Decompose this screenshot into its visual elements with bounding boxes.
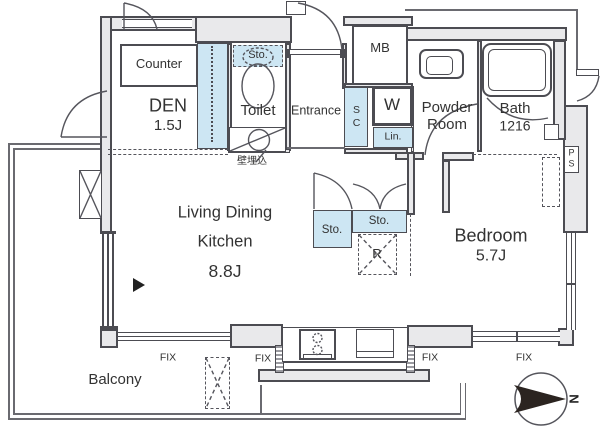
compass-icon: N <box>514 373 582 425</box>
wall-corner-se <box>558 328 574 346</box>
fix-label-3: FIX <box>422 352 438 363</box>
window-den-north <box>122 19 192 28</box>
ldk-size-label: 8.8J <box>208 262 241 280</box>
refrigerator-label: R <box>372 247 381 261</box>
fridge-side-dashed <box>410 214 411 276</box>
hall-storage-2-label: Sto. <box>369 215 389 227</box>
den-partition-dashed-2 <box>108 154 228 155</box>
fix-label-4: FIX <box>516 352 532 363</box>
window-kitchen <box>283 362 407 370</box>
toilet-storage-label: Sto. <box>248 50 268 62</box>
balcony-rail-top-outer <box>8 143 100 145</box>
fix-label-2: FIX <box>255 353 271 364</box>
corridor-line-right <box>576 9 578 70</box>
linen-label: Lin. <box>385 131 402 142</box>
ps-label-s: S <box>568 159 574 168</box>
window-ldk-west-line1 <box>102 234 104 330</box>
window-ldk-west-cap-bottom <box>100 328 116 331</box>
window-ldk-west-line3 <box>112 234 114 330</box>
bath-under-dashed <box>473 154 557 155</box>
mb-label: MB <box>370 41 390 55</box>
wall-hall-divider <box>407 152 415 215</box>
bath-size-label: 1216 <box>499 119 530 134</box>
hall-storage-1-label: Sto. <box>322 224 342 236</box>
powder-vanity <box>419 49 464 79</box>
window-ldk-south <box>118 332 230 341</box>
entrance-label: Entrance <box>291 104 341 117</box>
den-size-label: 1.5J <box>154 118 182 134</box>
bath-label: Bath <box>500 101 531 117</box>
svg-text:N: N <box>567 394 582 403</box>
entrance-hinge-right <box>340 49 345 58</box>
sc-label: SC <box>350 104 361 130</box>
balcony-rail-right-outer <box>465 383 467 419</box>
storage1-door-arc <box>314 173 352 209</box>
balcony-rail-left-inner <box>13 148 15 415</box>
direction-marker-icon <box>133 278 145 292</box>
toilet-washbasin-box <box>229 127 286 152</box>
balcony-label: Balcony <box>88 372 141 388</box>
balcony-rail-left-outer <box>8 143 10 420</box>
entrance-sill <box>288 49 344 55</box>
balcony-divider <box>260 385 262 413</box>
storage2-door-arc-b <box>380 184 406 209</box>
bedroom-label: Bedroom <box>454 227 527 246</box>
ps-label-p: P <box>568 148 574 157</box>
kitchen-sink <box>356 329 394 358</box>
powder-room-label-1: Powder <box>422 100 473 116</box>
window-ldk-west-line2 <box>107 234 109 330</box>
window-bedroom-east <box>566 233 576 330</box>
bathtub <box>482 43 552 97</box>
stove-grill <box>303 354 332 359</box>
bath-corner-box <box>544 124 559 140</box>
bedroom-closet-dashed <box>542 157 560 207</box>
entrance-step <box>287 147 345 149</box>
powder-room-label-2: Room <box>427 117 467 133</box>
balcony-rail-top-inner <box>13 148 100 150</box>
entrance-top-box <box>286 1 306 15</box>
ldk-label-2: Kitchen <box>197 233 252 250</box>
floor-plan: N Counter DEN 1.5J Toilet Sto. Entrance … <box>0 0 600 431</box>
wall-bedroom-west <box>442 160 450 213</box>
balcony-rail-bottom-outer <box>8 418 466 420</box>
entrance-hinge-left <box>285 49 290 58</box>
window-bedroom-south <box>473 331 560 342</box>
counter-label: Counter <box>136 57 182 71</box>
washer-label: W <box>384 96 400 114</box>
corridor-line-top <box>405 9 577 11</box>
toilet-label: Toilet <box>240 103 275 119</box>
balcony-unit-dashed <box>205 357 230 409</box>
wall-south-band-b <box>407 325 473 348</box>
storage2-door-arc-a <box>353 184 380 209</box>
exterior-door-right-leaf <box>576 69 599 76</box>
balcony-rail-right-inner <box>460 383 462 414</box>
fix-label-1: FIX <box>160 352 176 363</box>
den-closet <box>197 43 228 149</box>
ldk-label-1: Living Dining <box>178 204 272 221</box>
wall-top-toilet <box>195 16 292 43</box>
balcony-unit-solid <box>79 170 102 219</box>
wall-top-right <box>405 27 567 41</box>
den-partition-dashed-1 <box>108 149 228 150</box>
wall-embedded-label: 壁埋込 <box>237 157 267 168</box>
balcony-rail-bottom-inner <box>13 413 461 415</box>
exterior-door-right-arc <box>577 76 599 101</box>
den-label: DEN <box>149 97 187 116</box>
bedroom-size-label: 5.7J <box>476 249 506 266</box>
